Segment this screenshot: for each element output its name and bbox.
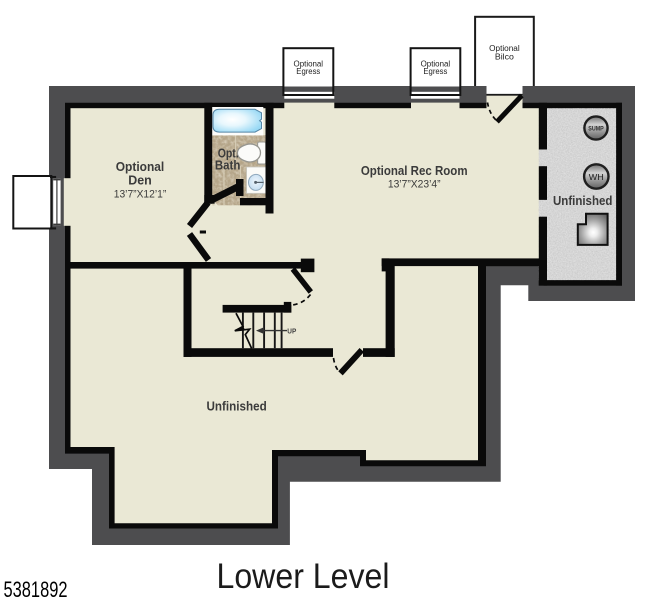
- svg-text:SUMP: SUMP: [588, 126, 604, 132]
- svg-text:WH: WH: [589, 172, 604, 182]
- svg-text:13’7”X12’1”: 13’7”X12’1”: [114, 189, 167, 201]
- svg-text:5381892: 5381892: [4, 577, 68, 600]
- svg-text:Den: Den: [128, 173, 152, 187]
- svg-text:Bilco: Bilco: [495, 53, 515, 62]
- svg-text:Optional Rec Room: Optional Rec Room: [361, 163, 468, 178]
- svg-text:Bath: Bath: [215, 159, 241, 173]
- svg-text:Lower Level: Lower Level: [217, 557, 390, 596]
- svg-text:Optional: Optional: [116, 160, 165, 174]
- svg-text:Egress: Egress: [423, 67, 447, 76]
- svg-text:Unfinished: Unfinished: [207, 399, 267, 414]
- svg-text:13’7”X23’4”: 13’7”X23’4”: [388, 179, 441, 191]
- svg-text:Unfinished: Unfinished: [553, 193, 613, 208]
- svg-text:UP: UP: [287, 326, 296, 335]
- svg-text:Egress: Egress: [296, 67, 320, 76]
